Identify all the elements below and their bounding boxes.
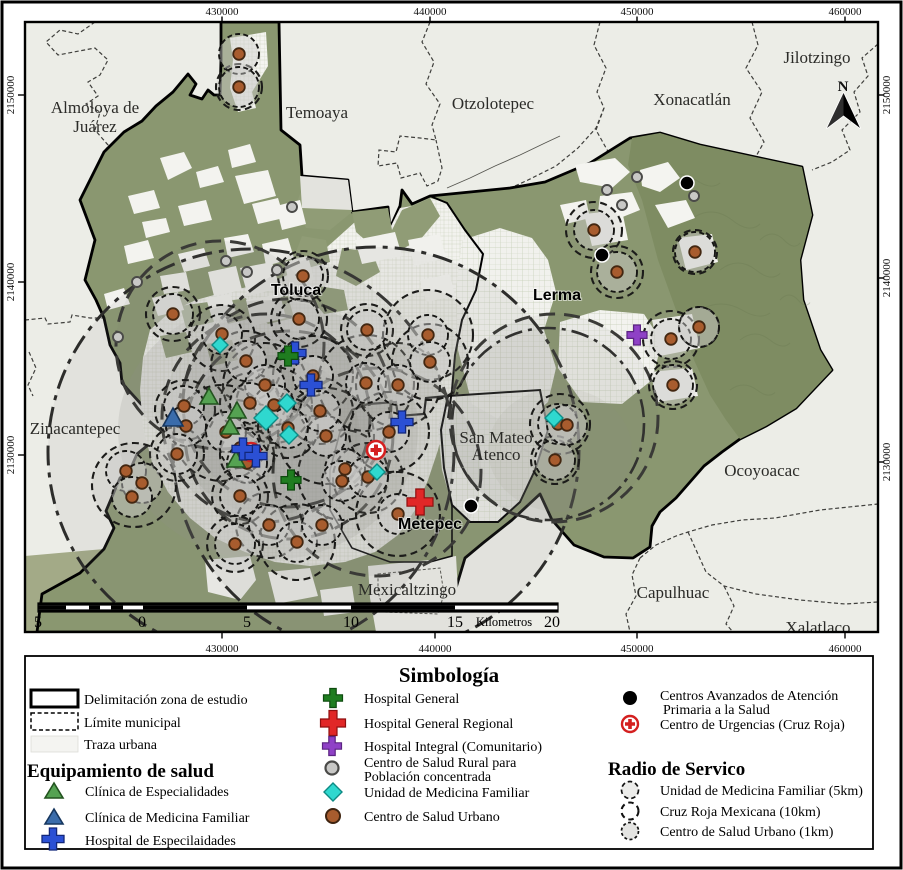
svg-text:Unidad de Medicina Familiar (5: Unidad de Medicina Familiar (5km) [660, 784, 863, 799]
svg-text:460000: 460000 [829, 643, 863, 655]
svg-text:Población concentrada: Población concentrada [364, 770, 492, 785]
svg-text:2140000: 2140000 [5, 262, 17, 301]
svg-text:430000: 430000 [206, 643, 240, 655]
svg-text:10: 10 [343, 614, 359, 631]
svg-text:Hospital General Regional: Hospital General Regional [364, 717, 513, 732]
svg-text:Delimitación zona de estudio: Delimitación zona de estudio [84, 693, 248, 708]
svg-text:Kilometros: Kilometros [476, 615, 532, 629]
svg-text:Traza urbana: Traza urbana [84, 738, 158, 753]
svg-text:0: 0 [138, 614, 146, 631]
svg-text:Simbología: Simbología [399, 663, 500, 687]
svg-text:440000: 440000 [419, 643, 453, 655]
svg-text:2130000: 2130000 [5, 435, 17, 474]
svg-text:Zinacantepec: Zinacantepec [30, 419, 121, 438]
svg-text:Equipamiento de salud: Equipamiento de salud [27, 761, 214, 782]
svg-text:Centro de Salud Urbano (1km): Centro de Salud Urbano (1km) [660, 825, 834, 840]
svg-text:Mexicaltzingo: Mexicaltzingo [358, 580, 456, 599]
svg-text:Hospital General: Hospital General [364, 692, 459, 707]
svg-text:450000: 450000 [621, 6, 655, 18]
svg-text:5: 5 [34, 614, 42, 631]
svg-text:460000: 460000 [829, 6, 863, 18]
svg-text:Límite municipal: Límite municipal [84, 716, 181, 731]
svg-text:Capulhuac: Capulhuac [637, 583, 710, 602]
svg-text:5: 5 [243, 614, 251, 631]
svg-text:Radio de Servico: Radio de Servico [608, 759, 745, 780]
svg-text:Centro de Salud Rural para: Centro de Salud Rural para [364, 756, 517, 771]
svg-text:430000: 430000 [206, 6, 240, 18]
svg-text:Centro de Urgencias (Cruz Roja: Centro de Urgencias (Cruz Roja) [660, 718, 845, 733]
svg-text:450000: 450000 [621, 643, 655, 655]
svg-text:Metepec: Metepec [398, 516, 462, 533]
svg-text:Temoaya: Temoaya [286, 103, 349, 122]
svg-text:Primaria a la Salud: Primaria a la Salud [663, 703, 770, 718]
svg-text:Lerma: Lerma [533, 287, 581, 304]
svg-text:440000: 440000 [414, 6, 448, 18]
svg-text:Toluca: Toluca [271, 282, 321, 299]
svg-text:Jilotzingo: Jilotzingo [783, 48, 850, 67]
svg-text:Clínica de Especialidades: Clínica de Especialidades [85, 785, 229, 800]
svg-text:Clínica de Medicina Familiar: Clínica de Medicina Familiar [85, 811, 250, 826]
svg-text:Ocoyoacac: Ocoyoacac [724, 461, 800, 480]
svg-text:Xalatlaco: Xalatlaco [785, 618, 850, 637]
svg-text:Hospital Integral (Comunitario: Hospital Integral (Comunitario) [364, 740, 542, 755]
svg-text:Hospital de Especilaidades: Hospital de Especilaidades [85, 834, 236, 849]
svg-text:Cruz Roja Mexicana (10km): Cruz Roja Mexicana (10km) [660, 805, 821, 820]
svg-text:Centro de Salud Urbano: Centro de Salud Urbano [364, 810, 500, 825]
svg-text:20: 20 [544, 614, 560, 631]
svg-text:Atenco: Atenco [471, 445, 520, 464]
svg-text:Unidad de Medicina Familiar: Unidad de Medicina Familiar [364, 786, 530, 801]
svg-text:2150000: 2150000 [5, 75, 17, 114]
svg-text:Xonacatlán: Xonacatlán [653, 90, 731, 109]
svg-text:Centros Avanzados de Atención: Centros Avanzados de Atención [660, 689, 838, 704]
svg-text:15: 15 [447, 614, 463, 631]
svg-text:Juárez: Juárez [73, 117, 117, 136]
svg-text:Otzolotepec: Otzolotepec [452, 94, 535, 113]
svg-text:Almoloya de: Almoloya de [51, 98, 139, 117]
